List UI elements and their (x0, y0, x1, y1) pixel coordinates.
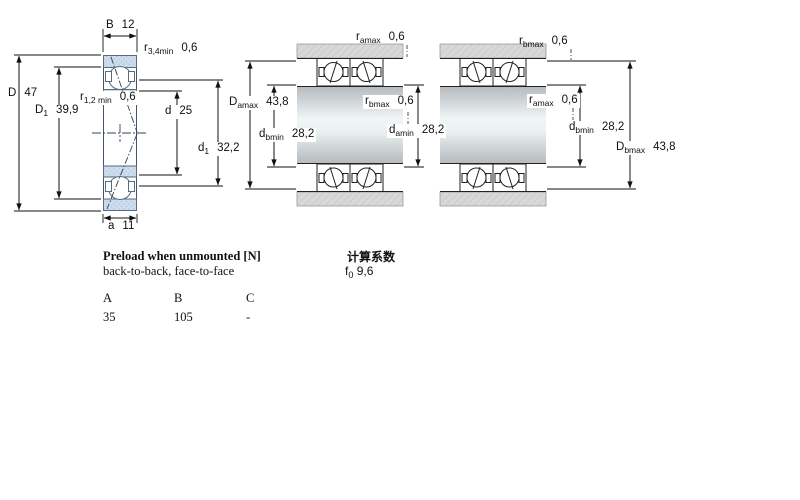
factors-title: 计算系数 (347, 248, 395, 265)
dim-value: 11 (122, 220, 134, 232)
housing-block (297, 192, 403, 206)
dim-value: 43,8 (653, 141, 675, 153)
dim-value: 25 (179, 105, 192, 117)
dim-value: 47 (24, 87, 37, 99)
dim-value: 0,6 (562, 94, 578, 106)
dim-value: 28,2 (292, 128, 314, 140)
dim-value: 0,6 (120, 91, 136, 103)
preload-title: Preload when unmounted [N] (103, 249, 261, 264)
dim-value: 28,2 (602, 121, 624, 133)
dim-value: 43,8 (266, 96, 288, 108)
dim-value: 12 (122, 19, 135, 31)
dim-value: 0,6 (398, 95, 414, 107)
center-mark (92, 124, 148, 142)
column-header-C: C (246, 291, 306, 306)
paired-mounting-right (440, 44, 546, 206)
dim-value: 0,6 (181, 42, 197, 54)
dim-label-dbmin-right: dbmin28,2 (567, 121, 626, 135)
dim-label-damin: damin28,2 (387, 124, 446, 138)
dim-label-D1: D139,9 (33, 104, 80, 118)
dim-label-ramax-top: ramax0,6 (354, 31, 407, 45)
dim-symbol: D (8, 87, 16, 99)
dim-label-Dbmax: Dbmax43,8 (614, 141, 678, 155)
bottom-bearing-pair (317, 164, 383, 192)
top-bearing-pair (460, 59, 526, 87)
top-bearing-pair (317, 59, 383, 87)
factor-f0: f0 9,6 (345, 264, 373, 280)
dim-symbol: B (106, 19, 114, 31)
dim-label-B: B12 (104, 19, 136, 33)
housing-block (297, 44, 403, 58)
dim-symbol: a (108, 220, 114, 232)
dim-value: 0,6 (389, 31, 405, 43)
dim-value: 32,2 (217, 142, 239, 154)
dim-value: 0,6 (552, 35, 568, 47)
dim-label-ramax-mid: ramax0,6 (527, 94, 580, 108)
factor-value: 9,6 (357, 264, 374, 278)
dim-label-D: D47 (6, 87, 39, 101)
technical-drawing-canvas (0, 0, 800, 340)
column-header-A: A (103, 291, 174, 306)
housing-block (440, 192, 546, 206)
dim-label-rbmax-top: rbmax0,6 (517, 35, 570, 49)
dim-label-d: d25 (163, 105, 194, 119)
bearing-drawing-panel: B12 r3,4min0,6 D47 D139,9 r1,2 min0,6 d2… (0, 0, 800, 500)
preload-value-A: 35 (103, 310, 174, 325)
preload-value-C: - (246, 310, 306, 325)
single-bearing-cross-section (92, 56, 148, 211)
dim-label-d1: d132,2 (196, 142, 242, 156)
bottom-bearing-pair (460, 164, 526, 192)
dim-value: 28,2 (422, 124, 444, 136)
dim-label-rbmax-mid: rbmax0,6 (363, 95, 416, 109)
dim-label-Damax: Damax43,8 (227, 96, 291, 110)
dim-label-r12min: r1,2 min0,6 (78, 91, 138, 105)
dim-label-dbmin-mid: dbmin28,2 (257, 128, 316, 142)
column-header-B: B (174, 291, 246, 306)
dim-value: 39,9 (56, 104, 78, 116)
dim-label-a: a11 (106, 220, 136, 234)
dim-label-r34min: r3,4min0,6 (142, 42, 199, 56)
dim-symbol: d (165, 105, 171, 117)
preload-subtitle: back-to-back, face-to-face (103, 264, 234, 279)
preload-value-B: 105 (174, 310, 246, 325)
right-radius-leaders (571, 49, 573, 120)
preload-table: A B C 35 105 - (103, 291, 306, 325)
middle-radius-leaders (407, 45, 408, 124)
